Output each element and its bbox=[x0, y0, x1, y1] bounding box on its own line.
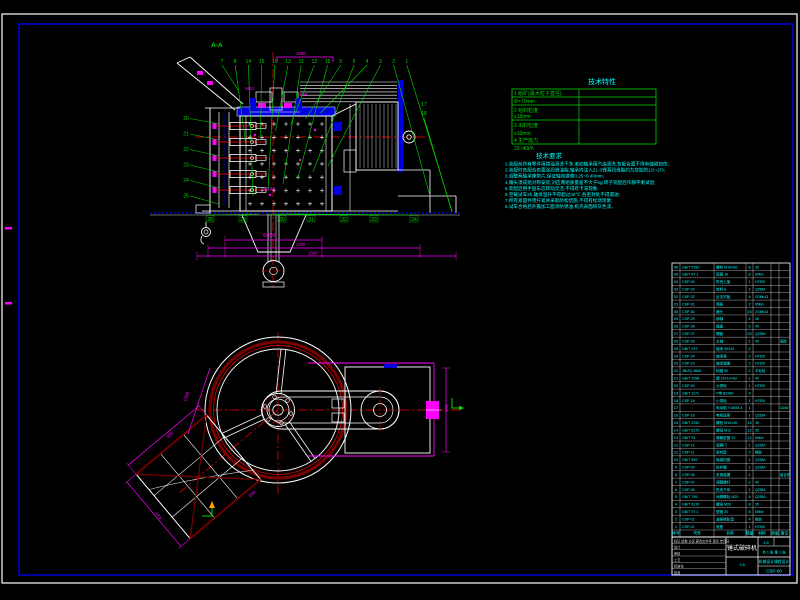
balloon-number: 16 bbox=[259, 59, 265, 65]
parts-cell-name: 螺母 M12 bbox=[716, 427, 731, 432]
balloon-number: 21 bbox=[183, 132, 189, 138]
parts-cell-material: 45 bbox=[755, 480, 759, 484]
balloon-number: 20 bbox=[183, 116, 189, 122]
parts-cell-material: Q235A bbox=[755, 458, 766, 462]
parts-cell-name: 销轴 bbox=[716, 316, 724, 321]
parts-cell-code: GB/T 5782 bbox=[682, 421, 699, 425]
title-block-left-label: 批准 bbox=[674, 570, 681, 575]
parts-cell-material: HT200 bbox=[755, 280, 765, 284]
tech-note-line: 8.试车合格后外露加工面涂防锈油,机壳表面喷灰色漆。 bbox=[505, 203, 616, 210]
parts-cell-material: HT200 bbox=[755, 384, 765, 388]
parts-cell-material: 65Mn bbox=[755, 436, 764, 440]
hatch-mark bbox=[213, 187, 217, 193]
parts-cell-code: CSP-09 bbox=[682, 466, 695, 470]
parts-cell-name: 张紧装置 bbox=[716, 472, 731, 477]
parts-cell-qty: 24 bbox=[747, 309, 752, 314]
balloon-number: 25 bbox=[183, 194, 189, 200]
balloon-number: 1 bbox=[405, 59, 408, 65]
parts-cell-code: GB/T 6170 bbox=[682, 428, 699, 432]
parts-cell-material: 橡胶 bbox=[755, 450, 762, 455]
parts-cell-material: Q235A bbox=[755, 495, 766, 499]
parts-cell-material: HT150 bbox=[755, 362, 765, 366]
parts-cell-no: 12 bbox=[674, 442, 679, 447]
parts-header: 材料 bbox=[758, 531, 766, 536]
hatch-dot bbox=[254, 134, 256, 136]
parts-cell-no: 18 bbox=[674, 398, 679, 403]
hatch-mark bbox=[284, 103, 292, 108]
parts-cell-name: 垫圈 20 bbox=[716, 509, 728, 514]
parts-cell-code: GB/T 297 bbox=[682, 347, 697, 351]
parts-cell-material: Q235A bbox=[755, 488, 766, 492]
parts-header: 序号 bbox=[672, 531, 680, 536]
tech-notes-title: 技术要求 bbox=[536, 151, 563, 160]
parts-cell-name: 密封垫 bbox=[716, 450, 727, 455]
hatch-mark bbox=[213, 155, 217, 161]
parts-cell-code: CSP-08 bbox=[682, 473, 695, 477]
parts-cell-code: GB/T 5782 bbox=[682, 265, 699, 269]
parts-cell-name: 锤盘 bbox=[716, 324, 724, 329]
parts-cell-name: 轴承 30310 bbox=[716, 346, 734, 351]
parts-cell-no: 24 bbox=[674, 353, 679, 358]
parts-cell-name: 垫圈 16 bbox=[716, 272, 728, 277]
tech-row-value: ≤10mm bbox=[514, 131, 531, 137]
parts-cell-name: 防护罩 bbox=[716, 465, 727, 470]
tech-row-label: 1 给矿(最大粒子直径) bbox=[514, 90, 562, 97]
balloon-number: 11 bbox=[299, 59, 304, 65]
sheet-count: 共 1 张 第 1 张 bbox=[762, 550, 786, 555]
parts-cell-code: CSP-23 bbox=[682, 362, 695, 366]
balloon-number: 5 bbox=[339, 59, 342, 65]
balloon-number: 7 bbox=[221, 59, 224, 65]
parts-cell-material: Q235A bbox=[755, 414, 766, 418]
clamp-mark bbox=[384, 364, 397, 368]
parts-cell-name: 轴承座 bbox=[716, 353, 727, 358]
parts-cell-no: 17 bbox=[674, 405, 679, 410]
parts-cell-name: 键 16×10×63 bbox=[716, 376, 737, 381]
parts-header: 名称 bbox=[726, 531, 734, 536]
parts-cell-name: 锤头 bbox=[716, 309, 724, 314]
parts-cell-code: GB/T 6170 bbox=[682, 503, 699, 507]
parts-cell-code: CSP-02 bbox=[682, 517, 695, 521]
parts-cell-name: 电机底座 bbox=[716, 413, 731, 418]
hatch-dot bbox=[314, 129, 316, 131]
parts-cell-name: 电动机 Y160M-4 bbox=[716, 405, 742, 410]
parts-cell-code: CSP-32 bbox=[682, 295, 695, 299]
parts-cell-no: 21 bbox=[674, 376, 679, 381]
parts-cell-code: CSP-28 bbox=[682, 325, 695, 329]
parts-cell-no: 26 bbox=[674, 338, 679, 343]
tech-row-value: ≤15mm bbox=[514, 114, 531, 120]
parts-cell-name: 筛板 bbox=[716, 301, 724, 306]
parts-cell-note: 调质 bbox=[780, 338, 787, 343]
parts-cell-no: 30 bbox=[674, 309, 679, 314]
bearing-seat bbox=[296, 98, 302, 112]
parts-header: 数量 bbox=[746, 531, 754, 536]
hatch-mark bbox=[213, 123, 217, 129]
parts-cell-name: 大带轮 bbox=[716, 383, 727, 388]
parts-cell-material: Q235A bbox=[755, 332, 766, 336]
drawing-scale: 1:5 bbox=[763, 540, 769, 545]
motor-end-cap bbox=[398, 80, 403, 172]
parts-cell-qty: 20 bbox=[747, 331, 752, 336]
parts-cell-name: 螺栓 M12×40 bbox=[716, 420, 737, 425]
parts-cell-code: CSP-11 bbox=[682, 451, 694, 455]
parts-cell-material: HT200 bbox=[755, 354, 765, 358]
parts-cell-code: CSP-26 bbox=[682, 339, 695, 343]
parts-cell-name: 轴端挡圈 bbox=[716, 457, 731, 462]
hatch-dot bbox=[269, 194, 271, 196]
parts-cell-code: CSP-34 bbox=[682, 280, 695, 284]
parts-cell-material: 橡胶 bbox=[755, 516, 762, 521]
hatch-dot bbox=[299, 159, 301, 161]
dim-text: M10 bbox=[245, 86, 254, 91]
parts-cell-no: 20 bbox=[674, 383, 679, 388]
parts-cell-material: 35 bbox=[755, 421, 759, 425]
balloon-number: 12 bbox=[312, 59, 318, 65]
parts-cell-qty: 12 bbox=[747, 420, 752, 425]
balloon-number: 18 bbox=[421, 111, 427, 117]
parts-cell-qty: 12 bbox=[747, 427, 752, 432]
parts-cell-no: 25 bbox=[674, 346, 679, 351]
hatch-mark bbox=[197, 71, 203, 75]
parts-cell-code: CSP-01 bbox=[682, 525, 695, 529]
hatch-mark bbox=[213, 171, 217, 177]
hatch-mark bbox=[207, 81, 213, 85]
parts-cell-no: 29 bbox=[674, 316, 679, 321]
drawing-title: 锤式破碎机 bbox=[727, 544, 757, 552]
balloon-number: 24 bbox=[183, 178, 189, 184]
parts-cell-name: 观察门 bbox=[716, 442, 727, 447]
parts-cell-code: CSP-24 bbox=[682, 354, 695, 358]
parts-cell-name: 底座 bbox=[716, 524, 724, 529]
parts-cell-no: 35 bbox=[674, 272, 679, 277]
parts-cell-code: GB/T 892 bbox=[682, 458, 697, 462]
balloon-number: 22 bbox=[183, 147, 189, 153]
parts-cell-code: GB/T 97.1 bbox=[682, 273, 698, 277]
tech-note-line: 7.所有紧固件须拧紧并采取防松措施,不得有松动现象; bbox=[505, 197, 612, 204]
drawing-unit: 机械设计课程设计 bbox=[759, 559, 790, 564]
parts-cell-name: 螺栓 M16×60 bbox=[716, 264, 737, 269]
parts-header: 备注 bbox=[781, 531, 789, 536]
dim-text: Φ240 bbox=[263, 187, 276, 193]
parts-cell-code: JB/ZQ 4606 bbox=[682, 369, 701, 373]
parts-cell-name: 减振橡胶垫 bbox=[716, 516, 734, 521]
balloon-number: 2 bbox=[392, 59, 395, 65]
dim-text: 900 bbox=[444, 404, 449, 412]
tech-note-line: 3.调整两轴承座垫片,保证轴向游隙0.25~0.40mm; bbox=[505, 173, 604, 180]
parts-cell-code: GB/T 799 bbox=[682, 495, 697, 499]
parts-cell-no: 14 bbox=[674, 427, 679, 432]
parts-cell-code: CSP-30 bbox=[682, 310, 695, 314]
parts-cell-code: CSP-18 bbox=[682, 399, 695, 403]
parts-cell-material: 45 bbox=[755, 339, 759, 343]
parts-cell-material: 65Mn bbox=[755, 273, 764, 277]
parts-cell-code: CSP-29 bbox=[682, 317, 695, 321]
tech-note-line: 2.装配时各配合表面涂润滑油脂,轴承内注入ZL-3锂基润滑脂约为空腔的1/2~2… bbox=[505, 167, 665, 174]
parts-cell-material: 35 bbox=[755, 428, 759, 432]
fold-mark bbox=[5, 227, 12, 230]
balloon-number: 17 bbox=[421, 102, 427, 108]
parts-cell-no: 23 bbox=[674, 361, 679, 366]
tech-note-line: 1.装配前所有零件用煤油清洗干净,滚动轴承用汽油清洗,各配合面不得有磕碰划伤; bbox=[505, 161, 669, 168]
tech-table-title: 技术特性 bbox=[588, 77, 616, 86]
bearing-seat bbox=[250, 98, 256, 112]
parts-cell-no: 27 bbox=[674, 331, 679, 336]
parts-cell-no: 10 bbox=[674, 457, 679, 462]
tech-row-label: 2 给料粒度 bbox=[514, 107, 538, 114]
title-block-left-label: 工艺 bbox=[674, 557, 680, 562]
parts-cell-no: 36 bbox=[674, 264, 679, 269]
tech-note-line: 6.空载试车2h,轴承温升不得超过30℃,各密封处不得漏油; bbox=[505, 191, 620, 198]
parts-cell-material: 35 bbox=[755, 503, 759, 507]
parts-header: 质量 bbox=[771, 531, 779, 536]
parts-cell-name: 隔套 bbox=[716, 331, 724, 336]
parts-cell-code: CSP-12 bbox=[682, 443, 695, 447]
balloon-number: 14 bbox=[246, 59, 252, 65]
balloon-number: 10 bbox=[272, 59, 278, 65]
parts-cell-name: 机壳上盖 bbox=[716, 279, 731, 284]
title-block-left-label: 审核 bbox=[674, 551, 681, 556]
parts-cell-code: CSP-20 bbox=[682, 384, 695, 388]
balloon-number: 23 bbox=[183, 163, 189, 169]
parts-cell-name: 主轴 bbox=[716, 338, 724, 343]
tech-row-label: 4 生产能力 bbox=[514, 137, 538, 144]
parts-cell-material: HT200 bbox=[755, 525, 765, 529]
tech-note-line: 5.装配后用手盘车应转动灵活,不得有卡滞现象; bbox=[505, 185, 599, 192]
parts-cell-material: ZGMn13 bbox=[755, 295, 768, 299]
parts-cell-code: CSP-16 bbox=[682, 414, 695, 418]
hatch-mark bbox=[213, 139, 217, 145]
parts-cell-name: V带 B2240 bbox=[716, 390, 733, 395]
parts-cell-no: 33 bbox=[674, 287, 679, 292]
parts-cell-no: 34 bbox=[674, 279, 679, 284]
parts-cell-name: 小带轮 bbox=[716, 398, 727, 403]
parts-cell-no: 28 bbox=[674, 324, 679, 329]
tech-row-label: 3 出料粒度 bbox=[514, 122, 538, 129]
parts-cell-material: Q235A bbox=[755, 466, 766, 470]
dim-text: 1080 bbox=[296, 51, 307, 56]
parts-cell-no: 19 bbox=[674, 390, 679, 395]
dim-text: Φ420 bbox=[263, 233, 276, 239]
tech-note-line: 4.锤头须成组对称安装,对应两组质量差不大于5g,转子装配后作静平衡试验; bbox=[505, 179, 656, 186]
parts-cell-no: 13 bbox=[674, 435, 679, 440]
parts-cell-name: 调整螺杆 bbox=[716, 479, 731, 484]
parts-cell-name: 反击衬板 bbox=[716, 294, 731, 299]
parts-cell-material: 65Mn bbox=[755, 510, 764, 514]
parts-cell-name: 轴承端盖 bbox=[716, 361, 731, 366]
parts-cell-name: 毡圈 50 bbox=[716, 368, 728, 373]
balloon-number: 4 bbox=[366, 59, 369, 65]
parts-cell-code: GB/T 93 bbox=[682, 436, 695, 440]
parts-cell-name: 地脚螺栓 M20 bbox=[716, 494, 738, 499]
parts-cell-material: ZGMn13 bbox=[755, 310, 768, 314]
tech-row-value: 20~40t/h bbox=[514, 146, 534, 152]
parts-cell-material: 65Mn bbox=[755, 302, 764, 306]
dim-text: 1330 bbox=[296, 242, 306, 247]
balloon-number: 3 bbox=[379, 59, 382, 65]
parts-cell-no: 16 bbox=[674, 413, 679, 418]
balloon-number: 6 bbox=[353, 59, 356, 65]
hatch-mark bbox=[258, 103, 266, 108]
cad-drawing-canvas: A-A 1080 bbox=[0, 0, 800, 600]
parts-cell-note: 组合件 bbox=[780, 472, 791, 477]
parts-cell-code: CSP-27 bbox=[682, 332, 695, 336]
balloon-number: 8 bbox=[234, 59, 237, 65]
bearing-block bbox=[334, 122, 342, 131]
parts-cell-code: GB/T 97.1 bbox=[682, 510, 698, 514]
parts-cell-no: 32 bbox=[674, 294, 679, 299]
parts-cell-code: CSP-07 bbox=[682, 480, 695, 484]
title-block-left-label: 设计 bbox=[674, 545, 681, 550]
parts-cell-note: 11kW bbox=[780, 406, 789, 410]
parts-cell-no: 15 bbox=[674, 420, 679, 425]
parts-cell-code: GB/T 1096 bbox=[682, 377, 699, 381]
dim-text: 1660 bbox=[308, 251, 318, 256]
parts-cell-name: 弹簧垫圈 12 bbox=[716, 435, 735, 440]
parts-cell-code: CSP-33 bbox=[682, 288, 695, 292]
parts-cell-code: GB/T 1171 bbox=[682, 391, 699, 395]
parts-cell-qty: 12 bbox=[747, 435, 752, 440]
parts-cell-name: 机壳下体 bbox=[716, 487, 731, 492]
parts-cell-no: 22 bbox=[674, 368, 679, 373]
balloon-number: 13 bbox=[285, 59, 291, 65]
parts-cell-material: 45 bbox=[755, 325, 759, 329]
balloon-number: 15 bbox=[325, 59, 331, 65]
parts-cell-material: 35 bbox=[755, 265, 759, 269]
drawing-subtitle: 1:5 bbox=[739, 562, 745, 567]
parts-cell-code: CSP-31 bbox=[682, 302, 695, 306]
tech-row-value: Φ×70mm bbox=[514, 99, 535, 105]
fold-mark bbox=[5, 302, 12, 305]
parts-header: 代号 bbox=[693, 531, 701, 536]
parts-cell-material: 45 bbox=[755, 317, 759, 321]
title-block-left-label: 标记 处数 分区 更改文件号 签名 年月日 bbox=[674, 538, 729, 543]
bearing-block bbox=[334, 186, 342, 195]
section-label: A-A bbox=[211, 42, 223, 49]
parts-cell-code: CSP-06 bbox=[682, 488, 695, 492]
drawing-number: CSP-00 bbox=[766, 569, 782, 574]
title-block-left-label: 标准化 bbox=[674, 564, 684, 569]
parts-cell-material: 45 bbox=[755, 377, 759, 381]
parts-cell-no: 31 bbox=[674, 301, 679, 306]
parts-cell-material: HT200 bbox=[755, 399, 765, 403]
parts-cell-material: 羊毛毡 bbox=[755, 368, 766, 373]
parts-cell-name: 螺母 M20 bbox=[716, 502, 731, 507]
parts-cell-material: Q235A bbox=[755, 288, 766, 292]
parts-cell-material: Q235A bbox=[755, 443, 766, 447]
parts-cell-name: 给料斗 bbox=[716, 287, 727, 292]
